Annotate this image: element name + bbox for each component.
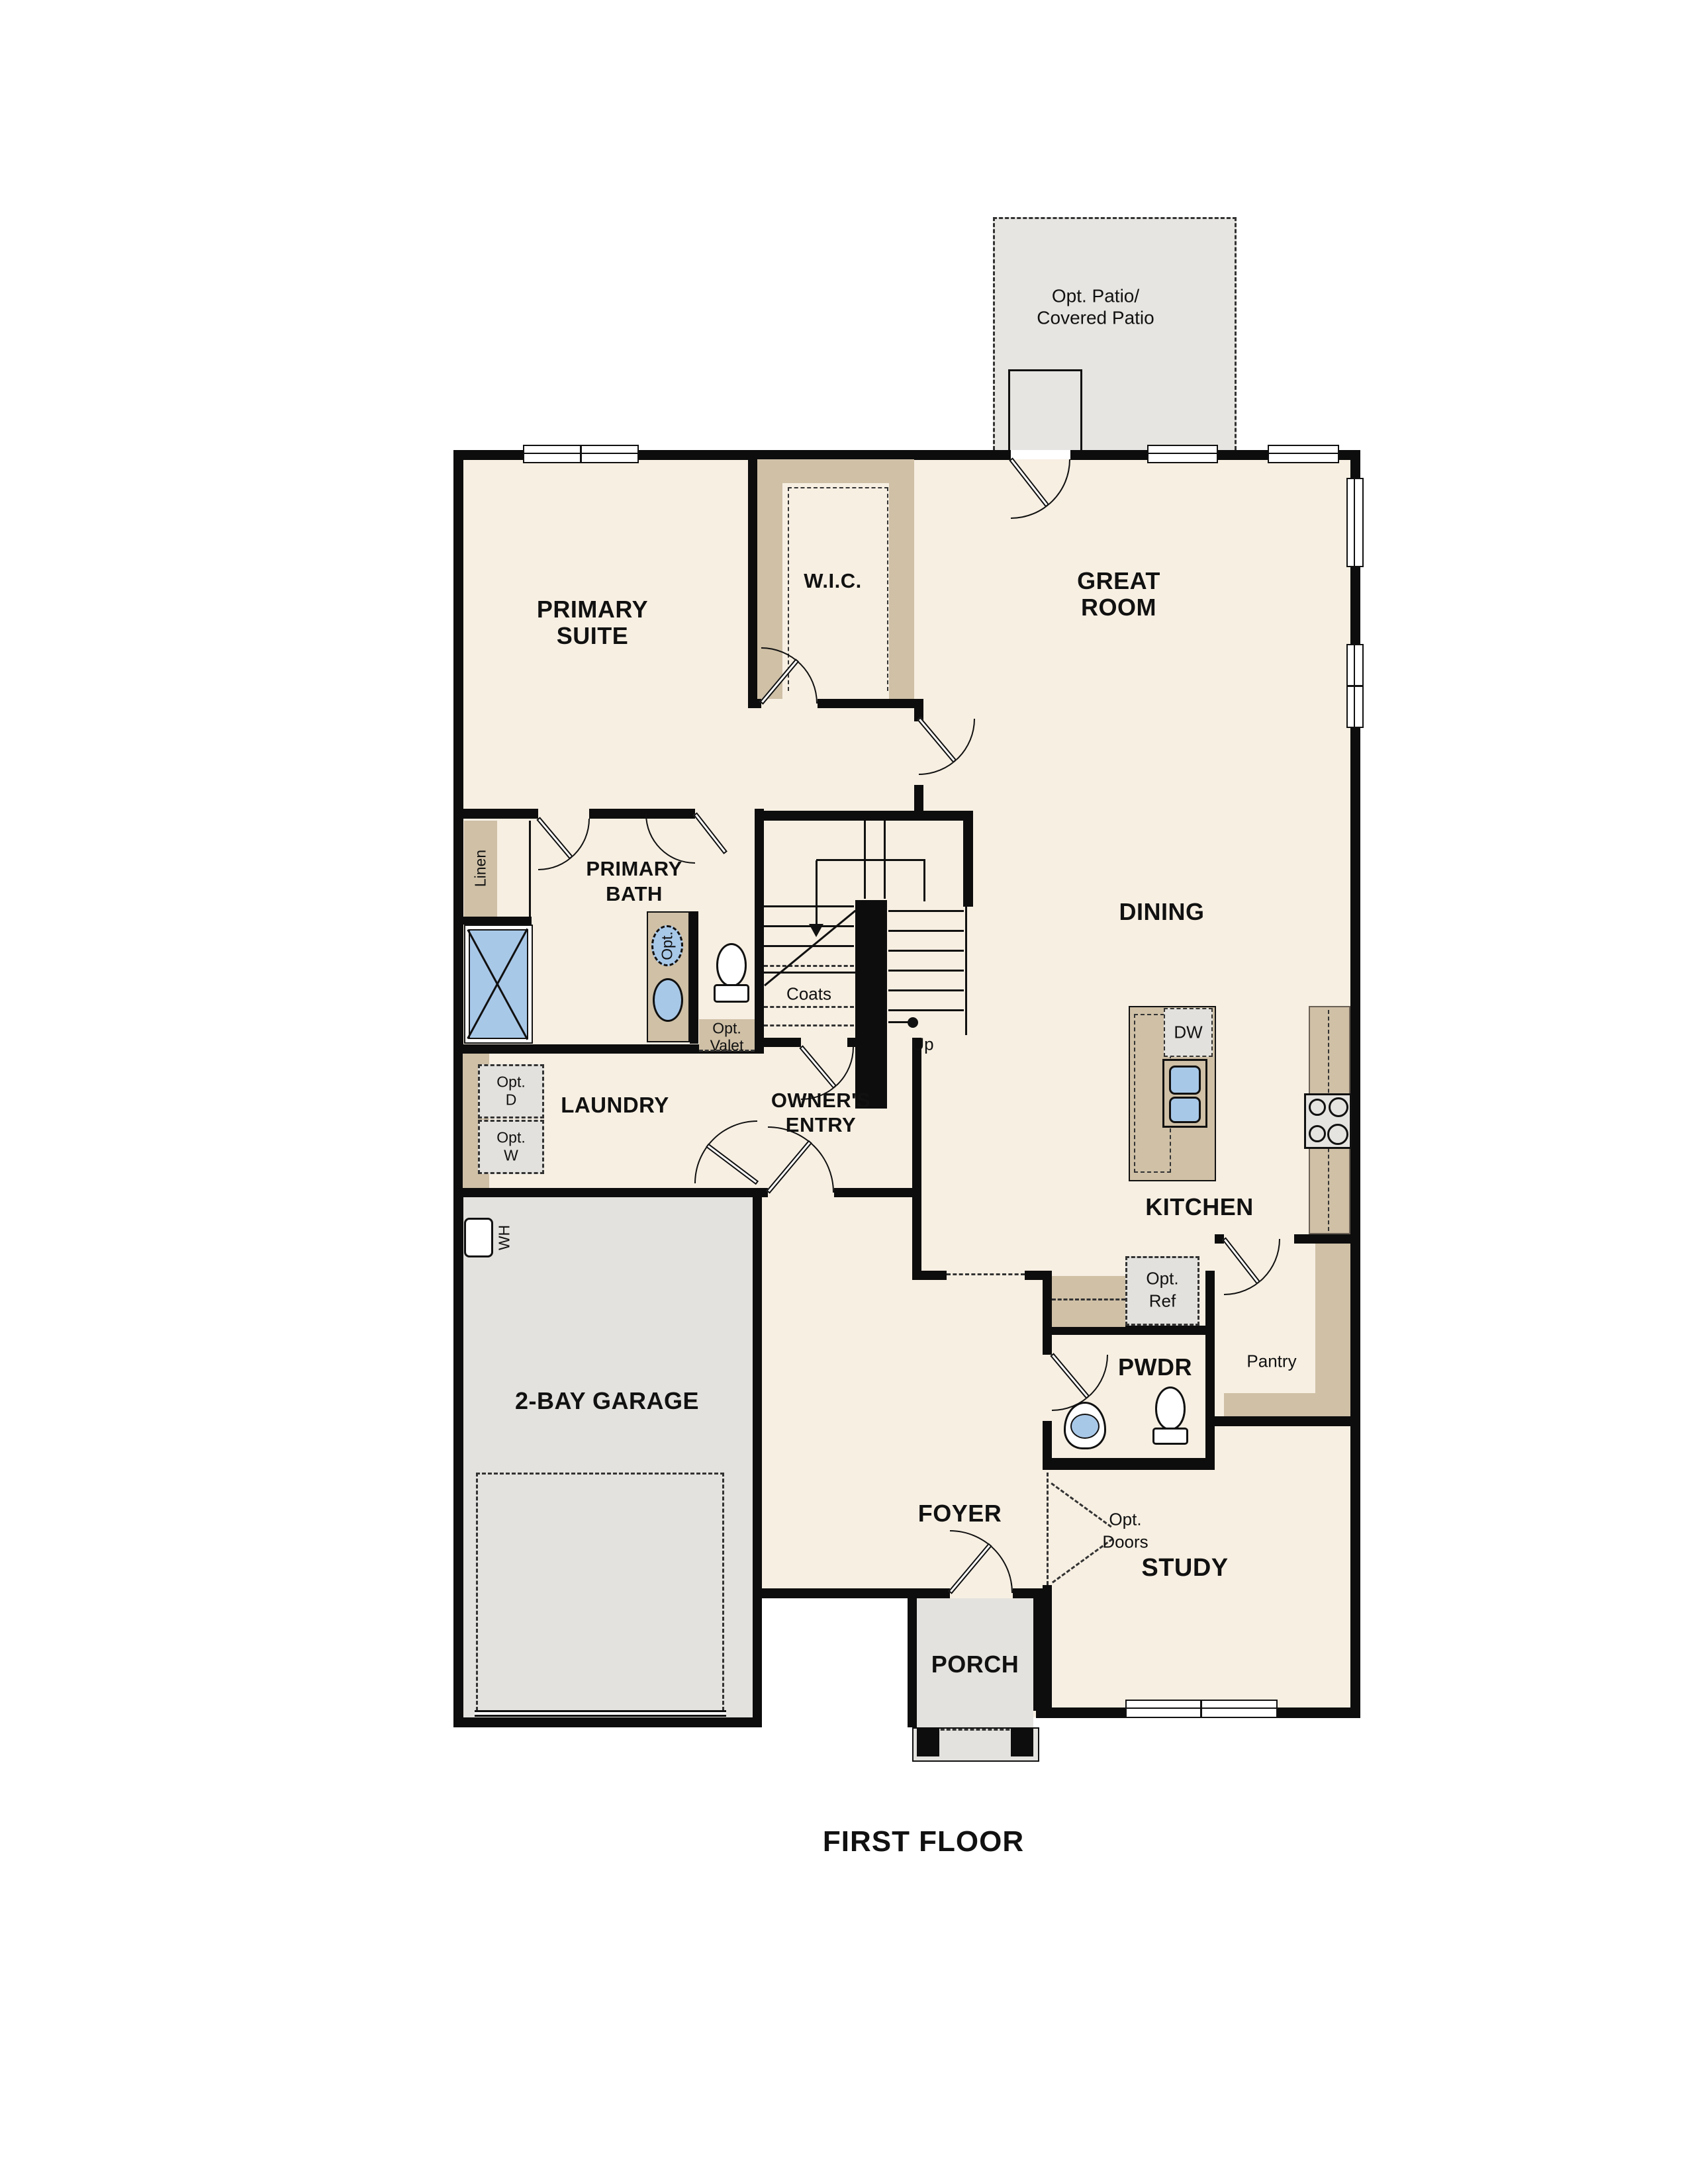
dining-label: DINING [1119, 899, 1205, 925]
exterior-notch [762, 1598, 908, 1718]
wall-garage-top-b [834, 1188, 912, 1197]
dishwasher-label: DW [1174, 1023, 1202, 1042]
wall-coats-bottom-b [847, 1038, 855, 1047]
owners-entry-label-line1: OWNER'S [771, 1089, 870, 1112]
porch-step-block-right [1011, 1727, 1033, 1756]
opt-ref-label-line1: Opt. [1146, 1269, 1178, 1289]
pwdr-sink-basin [1070, 1414, 1100, 1439]
window-greatroom-2 [1268, 445, 1339, 463]
opt-doors-opening-line [1047, 1473, 1049, 1585]
wall-wic-bottom-b [818, 699, 923, 708]
opt-washer-label-line1: Opt. [496, 1129, 525, 1146]
wall-pwdr-left-upper-stub [1043, 1335, 1052, 1355]
window-study-divider [1200, 1701, 1202, 1717]
window-greatroom-1 [1147, 445, 1218, 463]
wall-under-linen [453, 917, 532, 925]
great-room-label-line2: ROOM [1081, 594, 1156, 621]
porch-label: PORCH [931, 1651, 1019, 1678]
stair-tread-right-6 [888, 1009, 964, 1011]
island-sink-basin-1 [1169, 1066, 1201, 1095]
window-greatroom-1-midline [1149, 453, 1217, 454]
patio-label-line1: Opt. Patio/ [1052, 287, 1139, 307]
water-heater-label: WH [496, 1225, 512, 1250]
coats-dashed-shelf-2 [764, 1024, 854, 1026]
bath-sink [653, 978, 683, 1022]
wall-wic-bottom-a [748, 699, 761, 708]
wall-pantry-bottom [1215, 1416, 1360, 1426]
wall-study-left-lower [1043, 1585, 1052, 1711]
opt-washer-label-line2: W [504, 1147, 518, 1163]
stair-tread-right-2 [888, 930, 964, 932]
garage-label: 2-BAY GARAGE [515, 1388, 699, 1414]
porch-step-block-left [917, 1727, 939, 1756]
stair-arrow-head [809, 924, 823, 937]
opt-tub-label: Opt. [659, 931, 675, 960]
wall-garage-right [753, 1188, 762, 1727]
window-primary-suite-divider [580, 446, 582, 462]
up-label: Up [912, 1035, 933, 1054]
stair-tread-right-1 [888, 910, 964, 912]
wall-toilet-nook [690, 911, 698, 1044]
linen-closet-divider [529, 821, 531, 917]
patio-label-line2: Covered Patio [1037, 308, 1154, 329]
opt-valet-label-line2: Valet [710, 1037, 744, 1054]
wall-bath-top-a [453, 809, 538, 819]
opt-doors-label-line1: Opt. [1109, 1510, 1141, 1529]
ref-side-counter [1052, 1276, 1125, 1327]
garage-door [475, 1710, 726, 1717]
wall-right [1350, 450, 1360, 1718]
opt-ref-label-line2: Ref [1149, 1292, 1176, 1311]
opt-valet-label-line1: Opt. [712, 1020, 741, 1036]
plan-title: FIRST FLOOR [823, 1826, 1024, 1858]
stove-burner-3 [1309, 1125, 1326, 1142]
great-room-label-line1: GREAT [1077, 568, 1160, 594]
study-label: STUDY [1141, 1555, 1228, 1582]
wall-pwdr-bottom [1043, 1458, 1215, 1470]
stair-arrow-line [816, 860, 818, 925]
opt-dryer-label-line2: D [506, 1091, 517, 1108]
bath-toilet-tank [714, 984, 749, 1003]
wall-suite-wic [748, 459, 757, 708]
ref-side-counter-dashed [1052, 1298, 1125, 1300]
wall-pwdr-top [1043, 1326, 1215, 1335]
island-sink-basin-2 [1169, 1097, 1201, 1123]
laundry-label: LAUNDRY [561, 1093, 669, 1117]
first-floor-plan: Opt. Patio/ Covered Patio [0, 0, 1688, 2184]
pwdr-toilet-tank [1152, 1428, 1188, 1445]
wall-bath-stairs [755, 809, 764, 1054]
water-heater [464, 1218, 493, 1257]
wall-hall-greatroom-stub-b [914, 785, 923, 813]
up-start-tail [888, 1021, 911, 1023]
pantry-shelf-right [1315, 1244, 1350, 1393]
wall-entry-right [912, 1038, 921, 1280]
stair-tread-right-3 [888, 950, 964, 952]
stairs-center-block [855, 900, 887, 1109]
stair-guide-v3 [923, 859, 925, 901]
linen-label: Linen [472, 850, 489, 887]
pwdr-toilet-bowl [1155, 1387, 1186, 1430]
pantry-shelf-bottom [1224, 1393, 1350, 1416]
pwdr-label: PWDR [1118, 1354, 1192, 1381]
wall-porch-right [1033, 1588, 1043, 1711]
wall-porch-left [908, 1588, 917, 1727]
stair-tread-left-1 [764, 905, 854, 907]
wall-pwdr-right [1205, 1335, 1215, 1467]
stair-break-dashed [764, 965, 854, 967]
kitchen-pass-dashed-opening [947, 1273, 1025, 1275]
coats-dashed-shelf-1 [764, 1006, 854, 1008]
wic-shelf-right [889, 459, 914, 699]
window-right-wall-2-divider [1348, 685, 1362, 687]
wall-pantry-top [1294, 1234, 1360, 1244]
stair-tread-right-4 [888, 970, 964, 972]
opt-doors-label-line2: Doors [1102, 1533, 1148, 1552]
primary-suite-label-line1: PRIMARY [537, 596, 648, 623]
primary-bath-label-line2: BATH [606, 883, 663, 905]
wic-label: W.I.C. [804, 570, 861, 592]
window-greatroom-2-midline [1269, 453, 1338, 454]
stove-burner-2 [1329, 1097, 1348, 1117]
wall-kitchen-foyer-a [912, 1271, 947, 1280]
foyer-label: FOYER [918, 1500, 1002, 1527]
patio-step [1008, 369, 1082, 450]
stair-rail [965, 905, 967, 1035]
opt-dryer-label-line1: Opt. [496, 1073, 525, 1090]
wall-coats-bottom-a [764, 1038, 801, 1047]
pantry-label: Pantry [1246, 1352, 1296, 1371]
window-right-wall-1 [1346, 478, 1364, 567]
garage-door-tracks [476, 1473, 724, 1711]
bath-toilet-bowl [716, 943, 747, 987]
stove-burner-1 [1309, 1099, 1326, 1116]
kitchen-label: KITCHEN [1145, 1194, 1254, 1220]
wall-pwdr-left-lower-stub [1043, 1421, 1052, 1458]
window-right-wall-1-midline [1354, 479, 1355, 566]
wall-stairs-top [755, 811, 973, 821]
coats-label: Coats [786, 985, 831, 1004]
owners-entry-label-line2: ENTRY [786, 1114, 856, 1136]
wall-left [453, 450, 463, 1727]
wall-garage-top-a [453, 1188, 768, 1197]
wall-foyer-bottom-a [762, 1588, 950, 1598]
wall-stairs-right [963, 811, 973, 907]
stove-burner-4 [1327, 1124, 1348, 1145]
stair-guide-h [816, 859, 925, 861]
primary-bath-label-line1: PRIMARY [586, 858, 682, 880]
stair-tread-right-5 [888, 989, 964, 991]
wall-garage-bottom [453, 1717, 762, 1727]
primary-suite-label-line2: SUITE [557, 623, 629, 649]
